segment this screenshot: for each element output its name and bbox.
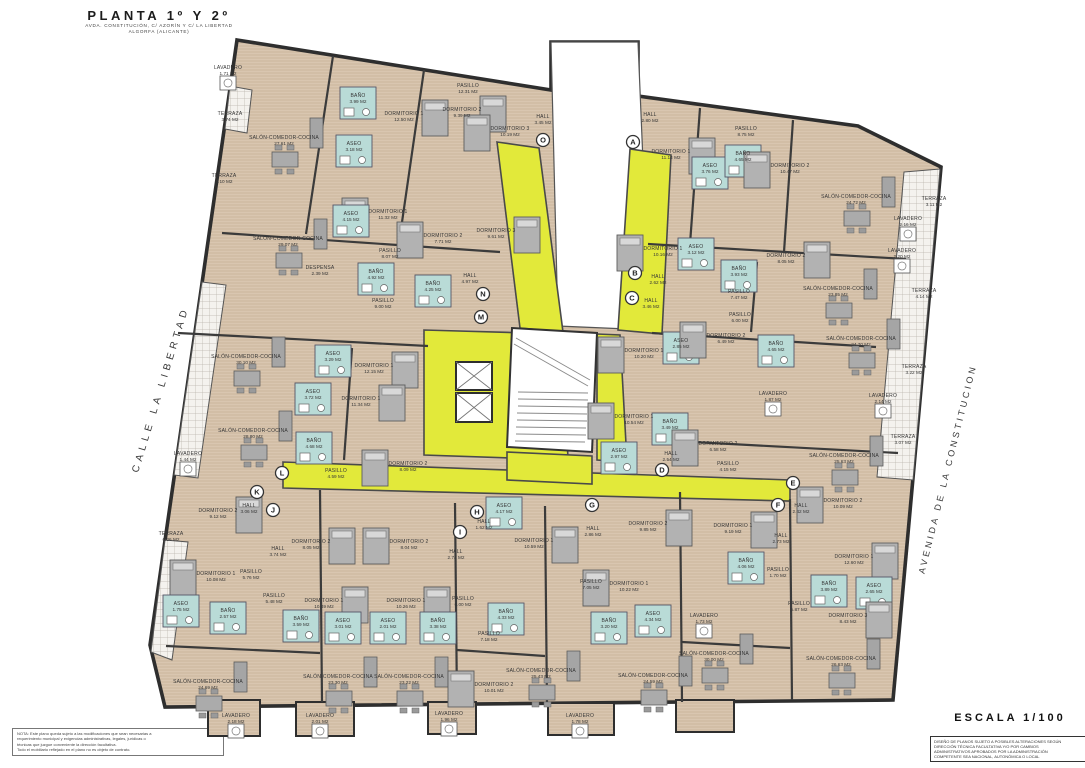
- room-area-label: 3.07 M2: [895, 440, 912, 445]
- room-area-label: 24.59 M2: [643, 679, 663, 684]
- room-area-label: 10.47 M2: [780, 169, 800, 174]
- room-area-label: 6.00 M2: [455, 602, 472, 607]
- svg-text:O: O: [540, 136, 546, 145]
- unit-marker: L: [276, 467, 289, 480]
- room-area-label: 8.43 M2: [840, 619, 857, 624]
- svg-text:F: F: [776, 501, 781, 510]
- room-area-label: 2.16 M2: [900, 222, 917, 227]
- room-area-label: 1.70 M2: [770, 573, 787, 578]
- room-area-label: 2.65 M2: [866, 589, 883, 594]
- unit-marker: G: [586, 499, 599, 512]
- room-area-label: 2.73 M2: [773, 539, 790, 544]
- bed-icon: [448, 671, 474, 707]
- bed-icon: [666, 510, 692, 546]
- unit-marker: N: [477, 288, 490, 301]
- room-area-label: 1.78 M2: [572, 719, 589, 724]
- room-area-label: 11.34 M2: [351, 402, 371, 407]
- room-area-label: 3.20 M2: [601, 624, 618, 629]
- bed-icon: [363, 528, 389, 564]
- room-area-label: 7.71 M2: [435, 239, 452, 244]
- room-label: BAÑO: [499, 608, 514, 615]
- room-area-label: 10.59 M2: [524, 544, 544, 549]
- room-label: SALÓN-COMEDOR-COCINA: [506, 667, 576, 674]
- room-area-label: 1.71 M2: [220, 71, 237, 76]
- bed-icon: [617, 235, 643, 271]
- room-area-label: 2.20 M2: [894, 254, 911, 259]
- room-area-label: 9.12 M2: [210, 514, 227, 519]
- room-label: BAÑO: [736, 150, 751, 157]
- room-label: SALÓN-COMEDOR-COCINA: [211, 353, 281, 360]
- bed-icon: [872, 543, 898, 579]
- unit-marker: K: [251, 486, 264, 499]
- room-area-label: 24.72 M2: [846, 200, 866, 205]
- room-area-label: 8.04 M2: [401, 545, 418, 550]
- bed-icon: [379, 385, 405, 421]
- room-area-label: 2.54 M2: [663, 457, 680, 462]
- room-label: SALÓN-COMEDOR-COCINA: [821, 193, 891, 200]
- room-area-label: 23.22 M2: [399, 680, 419, 685]
- svg-text:A: A: [630, 138, 636, 147]
- room-area-label: 5.76 M2: [243, 575, 260, 580]
- room-area-label: 1.75 M2: [173, 607, 190, 612]
- svg-text:K: K: [254, 488, 260, 497]
- room-area-label: 23.85 M2: [828, 292, 848, 297]
- room-area-label: 1.62 M2: [476, 525, 493, 530]
- svg-text:D: D: [659, 466, 665, 475]
- svg-text:G: G: [589, 501, 595, 510]
- svg-text:J: J: [271, 506, 275, 515]
- room-area-label: 3.12 M2: [688, 250, 705, 255]
- washer-icon: [572, 724, 588, 738]
- room-label: SALÓN-COMEDOR-COCINA: [173, 678, 243, 685]
- bed-icon: [866, 602, 892, 638]
- room-area-label: 3.59 M2: [293, 622, 310, 627]
- room-area-label: 26.63 M2: [831, 662, 851, 667]
- room-area-label: 4.92 M2: [368, 275, 385, 280]
- svg-text:E: E: [790, 479, 795, 488]
- unit-marker: D: [656, 464, 669, 477]
- room-label: BAÑO: [431, 617, 446, 624]
- unit-marker: E: [787, 477, 800, 490]
- room-area-label: 3.45 M2: [535, 120, 552, 125]
- room-area-label: 2.97 M2: [611, 454, 628, 459]
- svg-text:C: C: [629, 294, 635, 303]
- room-area-label: 5.48 M2: [266, 599, 283, 604]
- room-area-label: 3.18 M2: [346, 147, 363, 152]
- room-area-label: 2.01 M2: [312, 719, 329, 724]
- room-area-label: 6.58 M2: [710, 447, 727, 452]
- room-area-label: 10.01 M2: [484, 688, 504, 693]
- room-area-label: 28.80 M2: [243, 434, 263, 439]
- unit-marker: J: [267, 504, 280, 517]
- room-label: BAÑO: [369, 268, 384, 275]
- floor-plan-sheet: PLANTA 1º Y 2º AVDA. CONSTITUCIÓN, C/ AZ…: [0, 0, 1085, 768]
- room-area-label: 11.32 M2: [378, 215, 398, 220]
- washer-icon: [441, 722, 457, 736]
- svg-text:I: I: [459, 528, 461, 537]
- room-area-label: 2.74 M2: [448, 555, 465, 560]
- room-area-label: 3.06 M2: [241, 509, 258, 514]
- room-area-label: 9.00 M2: [375, 304, 392, 309]
- room-area-label: 4.25 M2: [425, 287, 442, 292]
- room-area-label: 3.22 M2: [906, 370, 923, 375]
- room-label: SALÓN-COMEDOR-COCINA: [253, 235, 323, 242]
- room-area-label: 4.59 M2: [328, 474, 345, 479]
- room-area-label: 3.46 M2: [643, 304, 660, 309]
- room-area-label: 3.49 M2: [662, 425, 679, 430]
- washer-icon: [875, 404, 891, 418]
- room-label: SALÓN-COMEDOR-COCINA: [806, 655, 876, 662]
- room-area-label: 8.75 M2: [738, 132, 755, 137]
- washer-icon: [228, 724, 244, 738]
- room-area-label: 10.08 M2: [206, 577, 226, 582]
- room-area-label: 8.07 M2: [382, 254, 399, 259]
- bed-icon: [170, 560, 196, 596]
- washer-icon: [900, 227, 916, 241]
- room-area-label: 2.18 M2: [228, 719, 245, 724]
- room-area-label: 3.74 M2: [222, 117, 239, 122]
- bed-icon: [552, 527, 578, 563]
- elevator-shaft: [456, 362, 492, 422]
- room-area-label: 10.49 M2: [314, 604, 334, 609]
- room-area-label: 4.65 M2: [768, 347, 785, 352]
- room-area-label: 3.76 M2: [702, 169, 719, 174]
- svg-text:M: M: [478, 313, 484, 322]
- washer-icon: [180, 462, 196, 476]
- room-area-label: 9.61 M2: [488, 234, 505, 239]
- room-label: SALÓN-COMEDOR-COCINA: [618, 672, 688, 679]
- room-label: BAÑO: [351, 92, 366, 99]
- room-area-label: 9.85 M2: [640, 527, 657, 532]
- room-area-label: 24.69 M2: [198, 685, 218, 690]
- room-area-label: 4.14 M2: [916, 294, 933, 299]
- room-area-label: 4.15 M2: [343, 217, 360, 222]
- room-area-label: 3.93 M2: [731, 272, 748, 277]
- room-area-label: 7.18 M2: [481, 637, 498, 642]
- room-label: BAÑO: [732, 265, 747, 272]
- room-area-label: 3.29 M2: [325, 357, 342, 362]
- room-area-label: 4.06 M2: [738, 564, 755, 569]
- washer-icon: [220, 76, 236, 90]
- unit-marker: C: [626, 292, 639, 305]
- room-area-label: 12.31 M2: [458, 89, 478, 94]
- unit-marker: F: [772, 499, 785, 512]
- unit-marker: O: [537, 134, 550, 147]
- room-area-label: 29.07 M2: [278, 242, 298, 247]
- room-area-label: 2.85 M2: [673, 344, 690, 349]
- room-area-label: 3.11 M2: [926, 202, 943, 207]
- room-area-label: 10.54 M2: [624, 420, 644, 425]
- room-area-label: 10.26 M2: [396, 604, 416, 609]
- floor-plan-drawing: LAVADERO1.71 M2TERRAZA3.74 M2SALÓN-COMED…: [0, 0, 1085, 768]
- room-area-label: 4.65 M2: [735, 157, 752, 162]
- room-area-label: 7.47 M2: [731, 295, 748, 300]
- room-area-label: 3.89 M2: [821, 587, 838, 592]
- room-label: SALÓN-COMEDOR-COCINA: [679, 650, 749, 657]
- room-label: SALÓN-COMEDOR-COCINA: [803, 285, 873, 292]
- room-area-label: 24.70 M2: [851, 342, 871, 347]
- washer-icon: [696, 624, 712, 638]
- room-area-label: 11.14 M2: [661, 155, 681, 160]
- svg-text:N: N: [480, 290, 485, 299]
- room-area-label: 7.05 M2: [583, 585, 600, 590]
- washer-icon: [312, 724, 328, 738]
- room-area-label: 2.62 M2: [650, 280, 667, 285]
- room-area-label: 8.09 M2: [400, 467, 417, 472]
- room-area-label: 2.86 M2: [585, 532, 602, 537]
- room-label: BAÑO: [294, 615, 309, 622]
- room-area-label: 30.10 M2: [236, 360, 256, 365]
- unit-marker: I: [454, 526, 467, 539]
- room-area-label: 4.97 M2: [462, 279, 479, 284]
- unit-marker: A: [627, 136, 640, 149]
- room-label: SALÓN-COMEDOR-COCINA: [826, 335, 896, 342]
- room-label: BAÑO: [602, 617, 617, 624]
- room-label: BAÑO: [307, 437, 322, 444]
- room-area-label: 2.42 M2: [793, 509, 810, 514]
- room-label: BAÑO: [769, 340, 784, 347]
- unit-marker: H: [471, 506, 484, 519]
- room-area-label: 2.80 M2: [642, 118, 659, 123]
- room-area-label: 30.00 M2: [704, 657, 724, 662]
- room-label: SALÓN-COMEDOR-COCINA: [303, 673, 373, 680]
- room-area-label: 4.34 M2: [645, 617, 662, 622]
- unit-marker: B: [629, 267, 642, 280]
- bed-icon: [804, 242, 830, 278]
- room-area-label: 2.39 M2: [312, 271, 329, 276]
- room-area-label: 12.15 M2: [364, 369, 384, 374]
- room-area-label: 3.74 M2: [270, 552, 287, 557]
- room-area-label: 1.87 M2: [765, 397, 782, 402]
- room-label: SALÓN-COMEDOR-COCINA: [374, 673, 444, 680]
- washer-icon: [765, 402, 781, 416]
- room-area-label: 8.05 M2: [303, 545, 320, 550]
- room-area-label: 2.14 M2: [875, 399, 892, 404]
- svg-text:H: H: [474, 508, 479, 517]
- room-label: BAÑO: [426, 280, 441, 287]
- unit-marker: M: [475, 311, 488, 324]
- room-area-label: 9.19 M2: [725, 529, 742, 534]
- room-area-label: 8.05 M2: [778, 259, 795, 264]
- room-area-label: 1.73 M2: [696, 619, 713, 624]
- room-area-label: 23.30 M2: [328, 680, 348, 685]
- room-area-label: 3.10 M2: [216, 179, 233, 184]
- room-area-label: 4.15 M2: [720, 467, 737, 472]
- room-area-label: 6.00 M2: [732, 318, 749, 323]
- bed-icon: [422, 100, 448, 136]
- room-area-label: 3.72 M2: [305, 395, 322, 400]
- room-area-label: 27.61 M2: [274, 141, 294, 146]
- room-area-label: 3.01 M2: [335, 624, 352, 629]
- room-area-label: 1.96 M2: [441, 717, 458, 722]
- room-area-label: 10.20 M2: [634, 354, 654, 359]
- bed-icon: [514, 217, 540, 253]
- svg-text:B: B: [632, 269, 638, 278]
- room-label: SALÓN-COMEDOR-COCINA: [218, 427, 288, 434]
- room-area-label: 3.99 M2: [350, 99, 367, 104]
- room-area-label: 10.22 M2: [619, 587, 639, 592]
- room-area-label: 2.57 M2: [220, 614, 237, 619]
- room-area-label: 25.63 M2: [834, 459, 854, 464]
- bed-icon: [329, 528, 355, 564]
- bed-icon: [598, 337, 624, 373]
- room-label: SALÓN-COMEDOR-COCINA: [809, 452, 879, 459]
- room-area-label: 12.60 M2: [844, 560, 864, 565]
- bed-icon: [392, 352, 418, 388]
- washer-icon: [894, 259, 910, 273]
- room-label: BAÑO: [739, 557, 754, 564]
- room-label: BAÑO: [221, 607, 236, 614]
- room-area-label: 10.16 M2: [653, 252, 673, 257]
- room-area-label: 1.44 M2: [180, 457, 197, 462]
- svg-text:L: L: [280, 469, 285, 478]
- room-area-label: 10.09 M2: [833, 504, 853, 509]
- room-area-label: 6.26 M2: [163, 537, 180, 542]
- stair-core: [507, 328, 597, 452]
- bed-icon: [362, 450, 388, 486]
- room-area-label: 3.38 M2: [430, 624, 447, 629]
- room-area-label: 2.01 M2: [380, 624, 397, 629]
- room-label: BAÑO: [663, 418, 678, 425]
- room-label: SALÓN-COMEDOR-COCINA: [249, 134, 319, 141]
- bed-icon: [588, 403, 614, 439]
- room-area-label: 6.87 M2: [791, 607, 808, 612]
- bed-icon: [464, 115, 490, 151]
- room-area-label: 25.43 M2: [531, 674, 551, 679]
- room-area-label: 10.19 M2: [500, 132, 520, 137]
- room-area-label: 12.50 M2: [394, 117, 414, 122]
- room-label: BAÑO: [822, 580, 837, 587]
- room-area-label: 4.17 M2: [496, 509, 513, 514]
- room-area-label: 9.39 M2: [454, 113, 471, 118]
- room-area-label: 6.49 M2: [718, 339, 735, 344]
- room-area-label: 4.68 M2: [306, 444, 323, 449]
- room-area-label: 4.33 M2: [498, 615, 515, 620]
